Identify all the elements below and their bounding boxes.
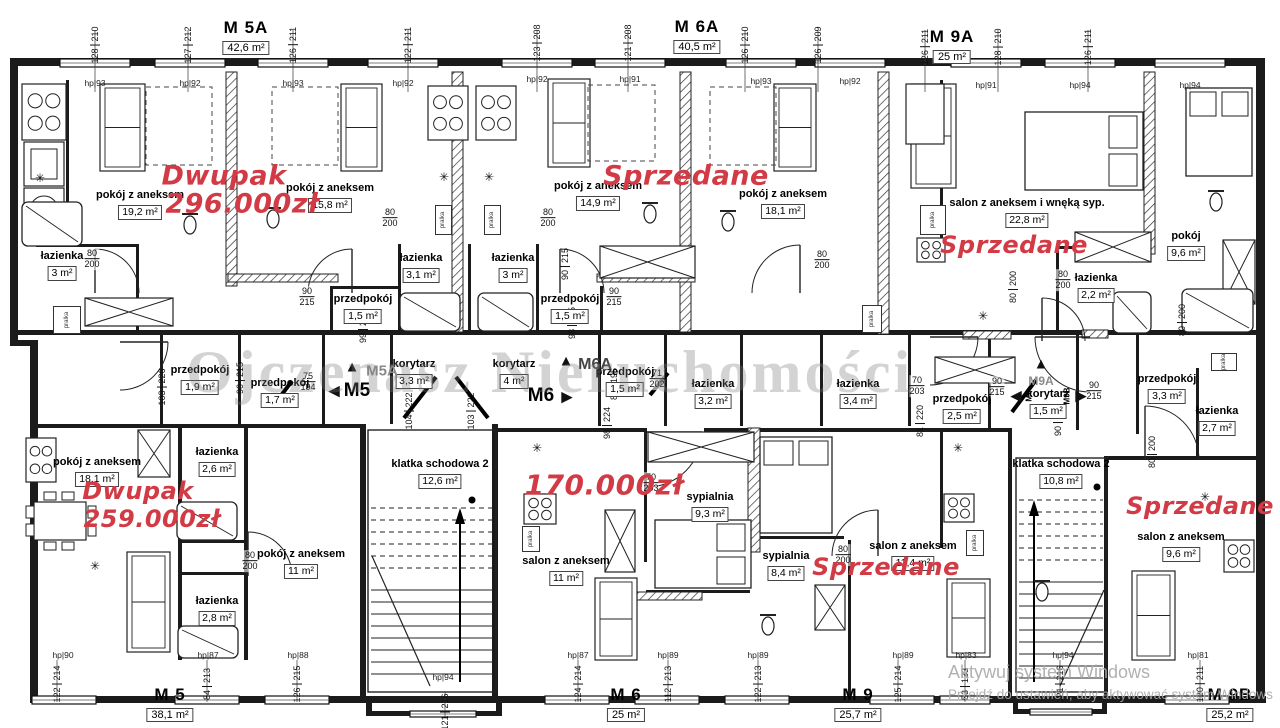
room-label: przedpokój1,5 m² — [541, 294, 600, 324]
door-height: 200 — [242, 562, 257, 572]
sold-annotation: Sprzedane — [603, 161, 769, 192]
door-width: 90 — [606, 286, 621, 297]
dimension-label: 84213 — [202, 668, 212, 700]
room-area: 3 m² — [499, 268, 528, 284]
window-id-label: hp|81 — [1187, 650, 1208, 660]
room-area: 10,8 m² — [1039, 474, 1083, 490]
dimension-label: 80200 — [1008, 271, 1018, 303]
room-name: sypialnia — [762, 551, 809, 563]
dimension-label: 122211 — [403, 27, 413, 63]
appliance-asterisk-symbol: ✳ — [90, 559, 100, 573]
door-height: 200 — [1055, 281, 1070, 291]
room-label: pokój z aneksem18,1 m² — [739, 189, 827, 219]
unit-marker-label: M9 — [1025, 390, 1034, 401]
room-label: pokój9,6 m² — [1167, 231, 1205, 261]
unit-label: M 538,1 m² — [146, 685, 193, 723]
unit-name: M 5 — [146, 685, 193, 705]
window-id-label: hp|87 — [197, 650, 218, 660]
room-area: 18,1 m² — [761, 204, 805, 220]
room-area: 3,1 m² — [402, 268, 440, 284]
room-label: pokój z aneksem11 m² — [257, 549, 345, 579]
price-annotation: Dwupak — [161, 161, 286, 192]
room-name: łazienka — [196, 447, 239, 459]
room-label: łazienka3 m² — [41, 251, 84, 281]
room-area: 2,7 m² — [1198, 421, 1236, 437]
room-area: 2,5 m² — [943, 409, 981, 425]
unit-area: 40,5 m² — [673, 40, 720, 54]
room-name: salon z aneksem — [869, 541, 956, 553]
room-label: klatka schodowa 212,6 m² — [391, 459, 488, 489]
washer-label: pralka — [64, 312, 70, 328]
room-area: 3,3 m² — [1148, 389, 1186, 405]
door-width: 90 — [989, 376, 1004, 387]
door-width: 80 — [1055, 269, 1070, 280]
dimension-label: 121208 — [623, 24, 633, 61]
door-height: 200 — [84, 260, 99, 270]
room-label: łazienka2,6 m² — [196, 447, 239, 477]
washer-box: pralka — [522, 526, 540, 552]
room-name: przedpokój — [933, 394, 992, 406]
window-id-label: hp|94 — [1179, 80, 1200, 90]
room-area: 1,5 m² — [344, 309, 382, 325]
room-area: 8,4 m² — [767, 566, 805, 582]
washer-label: pralka — [1221, 354, 1227, 370]
window-id-label: hp|89 — [892, 650, 913, 660]
window-id-label: hp|94 — [432, 672, 453, 682]
unit-name: M 6A — [673, 17, 720, 37]
room-label: salon z aneksem9,6 m² — [1137, 532, 1224, 562]
room-area: 2,8 m² — [198, 611, 236, 627]
washer-label: pralka — [528, 531, 534, 547]
room-label: łazienka3 m² — [492, 253, 535, 283]
unit-area: 42,6 m² — [222, 41, 269, 55]
door-size-label: 90215 — [606, 286, 621, 308]
washer-box: pralka — [862, 305, 882, 333]
room-name: łazienka — [41, 251, 84, 263]
room-label: przedpokój1,5 m² — [334, 294, 393, 324]
sold-annotation: Sprzedane — [1126, 492, 1274, 520]
appliance-asterisk-symbol: ✳ — [484, 170, 494, 184]
washer-box: pralka — [435, 205, 452, 235]
unit-marker-arrow-icon: ◀ — [1010, 389, 1022, 404]
dimension-label: 123208 — [532, 24, 542, 61]
door-height: 215 — [989, 388, 1004, 398]
dimension-label: 80200 — [1147, 436, 1157, 468]
unit-area: 25 m² — [607, 708, 645, 722]
unit-label: M 6A40,5 m² — [673, 17, 720, 55]
room-label: salon z aneksem i wnęką syp.22,8 m² — [949, 198, 1104, 228]
room-name: przedpokój — [1138, 374, 1197, 386]
dimension-label: 112213 — [663, 666, 673, 702]
floor-plan: pokój z aneksem19,2 m²pokój z aneksem15,… — [0, 0, 1280, 728]
room-label: łazienka2,2 m² — [1075, 273, 1118, 303]
price-annotation: 170.000zł — [525, 469, 684, 502]
door-width: 80 — [84, 248, 99, 259]
door-height: 200 — [814, 261, 829, 271]
window-id-label: hp|92 — [839, 76, 860, 86]
dimension-label: 128210 — [993, 28, 1003, 65]
window-id-label: hp|87 — [567, 650, 588, 660]
room-name: łazienka — [1196, 406, 1239, 418]
door-width: 80 — [382, 207, 397, 218]
dimension-label: 90215 — [560, 248, 570, 280]
washer-box: pralka — [1211, 353, 1237, 371]
room-name: salon z aneksem i wnęką syp. — [949, 198, 1104, 210]
room-name: pokój z aneksem — [257, 549, 345, 561]
room-label: łazienka2,8 m² — [196, 596, 239, 626]
dimension-label: 124214 — [573, 665, 583, 702]
dimension-label: 122214 — [52, 665, 62, 702]
room-label: salon z aneksem11 m² — [522, 556, 609, 586]
washer-label: pralka — [972, 535, 978, 551]
room-name: sypialnia — [686, 492, 733, 504]
room-area: 19,2 m² — [118, 205, 162, 221]
washer-box: pralka — [484, 205, 501, 235]
door-size-label: 90215 — [1086, 380, 1101, 402]
appliance-asterisk-symbol: ✳ — [953, 441, 963, 455]
door-size-label: 80200 — [382, 207, 397, 229]
sold-annotation: Sprzedane — [812, 553, 960, 581]
door-width: 90 — [299, 286, 314, 297]
dimension-label: 122213 — [753, 665, 763, 702]
room-label: przedpokój3,3 m² — [1138, 374, 1197, 404]
windows-activation-line1: Aktywuj system Windows — [948, 662, 1273, 683]
room-name: łazienka — [492, 253, 535, 265]
room-name: przedpokój — [334, 294, 393, 306]
room-name: pokój — [1167, 231, 1205, 243]
room-area: 14,9 m² — [576, 196, 620, 212]
door-size-label: 80200 — [1055, 269, 1070, 291]
dimension-label: 126209 — [813, 26, 823, 63]
window-id-label: hp|89 — [747, 650, 768, 660]
dimension-label: 126211 — [1083, 29, 1093, 65]
window-id-label: hp|91 — [975, 80, 996, 90]
dimension-label: 126211 — [288, 27, 298, 63]
washer-label: pralka — [490, 212, 496, 228]
dimension-label: 126210 — [740, 26, 750, 63]
room-label: sypialnia8,4 m² — [762, 551, 809, 581]
washer-box: pralka — [966, 530, 984, 556]
door-size-label: 90215 — [989, 376, 1004, 398]
room-area: 11 m² — [549, 571, 583, 587]
room-name: pokój z aneksem — [53, 457, 141, 469]
washer-label: pralka — [869, 311, 875, 327]
appliance-asterisk-symbol: ✳ — [35, 171, 45, 185]
room-area: 12,6 m² — [418, 474, 462, 490]
unit-label: M 5A42,6 m² — [222, 18, 269, 56]
door-width: 90 — [1086, 380, 1101, 391]
room-area: 1,5 m² — [1029, 404, 1067, 420]
room-area: 2,6 m² — [198, 462, 236, 478]
window-id-label: hp|92 — [179, 78, 200, 88]
unit-name: M 9A — [930, 27, 975, 47]
room-name: łazienka — [1075, 273, 1118, 285]
dimension-label: 128210 — [90, 26, 100, 63]
windows-activation-watermark: Aktywuj system Windows Przejdź do ustawi… — [948, 662, 1273, 702]
unit-marker-label: M9A — [1028, 374, 1053, 388]
room-label: sypialnia9,3 m² — [686, 492, 733, 522]
unit-marker-arrow-icon: ▲ — [1034, 357, 1049, 372]
price-annotation: Dwupak — [82, 477, 194, 505]
dimension-label: 121216 — [440, 693, 450, 728]
door-height: 215 — [606, 298, 621, 308]
unit-marker-arrow-icon: ▶ — [1075, 389, 1087, 404]
room-name: łazienka — [400, 253, 443, 265]
appliance-asterisk-symbol: ✳ — [532, 441, 542, 455]
window-id-label: hp|93 — [282, 78, 303, 88]
window-id-label: hp|83 — [955, 650, 976, 660]
window-id-label: hp|92 — [392, 78, 413, 88]
window-id-label: hp|94 — [1052, 650, 1073, 660]
room-area: 9,6 m² — [1167, 246, 1205, 262]
dimension-label: 103226 — [157, 368, 167, 405]
unit-label: M 625 m² — [607, 685, 645, 723]
room-name: salon z aneksem — [522, 556, 609, 568]
window-id-label: hp|89 — [657, 650, 678, 660]
dimension-label: 125214 — [893, 665, 903, 702]
dimension-label: 81220 — [915, 405, 925, 437]
room-area: 11 m² — [284, 564, 318, 580]
door-size-label: 80200 — [814, 249, 829, 271]
room-label: łazienka3,1 m² — [400, 253, 443, 283]
washer-label: pralka — [930, 212, 936, 228]
room-area: 9,6 m² — [1162, 547, 1200, 563]
unit-label: M 925,7 m² — [834, 685, 881, 723]
unit-area: 38,1 m² — [146, 708, 193, 722]
room-label: łazienka2,7 m² — [1196, 406, 1239, 436]
room-name: salon z aneksem — [1137, 532, 1224, 544]
door-width: 80 — [242, 550, 257, 561]
windows-activation-line2: Przejdź do ustawień, aby aktywować syste… — [948, 687, 1273, 702]
unit-name: M 9 — [834, 685, 881, 705]
door-height: 215 — [299, 298, 314, 308]
unit-name: M 5A — [222, 18, 269, 38]
door-size-label: 80200 — [242, 550, 257, 572]
window-id-label: hp|93 — [84, 78, 105, 88]
dimension-label: 126211 — [920, 29, 930, 65]
agency-watermark: Ojczenasz Nieruchomości — [186, 338, 913, 407]
room-area: 2,2 m² — [1077, 288, 1115, 304]
door-height: 215 — [1086, 392, 1101, 402]
dimension-label: 80200 — [1177, 304, 1187, 336]
washer-box: pralka — [53, 306, 81, 334]
price-annotation: 259.000zł — [84, 505, 221, 533]
dimension-label: 127212 — [183, 26, 193, 63]
dimension-label: 98224 — [602, 407, 612, 439]
room-area: 1,5 m² — [551, 309, 589, 325]
window-id-label: hp|94 — [1069, 80, 1090, 90]
window-id-label: hp|88 — [287, 650, 308, 660]
room-name: przedpokój — [541, 294, 600, 306]
door-size-label: 90215 — [299, 286, 314, 308]
unit-label: M 9A25 m² — [930, 27, 975, 65]
door-width: 80 — [814, 249, 829, 260]
price-annotation: 296.000zł — [165, 189, 318, 220]
room-name: łazienka — [196, 596, 239, 608]
window-id-label: hp|92 — [526, 74, 547, 84]
window-id-label: hp|90 — [52, 650, 73, 660]
room-name: klatka schodowa 2 — [391, 459, 488, 471]
room-area: 22,8 m² — [1005, 213, 1049, 229]
washer-label: pralka — [441, 212, 447, 228]
room-label: przedpokój2,5 m² — [933, 394, 992, 424]
unit-name: M 6 — [607, 685, 645, 705]
unit-area: 25,2 m² — [1206, 708, 1253, 722]
sold-annotation: Sprzedane — [940, 231, 1088, 259]
dimension-label: 126215 — [292, 665, 302, 702]
unit-marker-label: M9B — [1063, 388, 1072, 405]
room-area: 3 m² — [48, 266, 77, 282]
window-id-label: hp|93 — [750, 76, 771, 86]
appliance-asterisk-symbol: ✳ — [439, 170, 449, 184]
room-area: 9,3 m² — [691, 507, 729, 523]
door-size-label: 80200 — [84, 248, 99, 270]
door-height: 200 — [382, 219, 397, 229]
unit-area: 25,7 m² — [834, 708, 881, 722]
room-label: klatka schodowa 210,8 m² — [1012, 459, 1109, 489]
window-id-label: hp|91 — [619, 74, 640, 84]
unit-area: 25 m² — [933, 50, 971, 64]
appliance-asterisk-symbol: ✳ — [978, 309, 988, 323]
door-height: 200 — [540, 219, 555, 229]
room-name: klatka schodowa 2 — [1012, 459, 1109, 471]
